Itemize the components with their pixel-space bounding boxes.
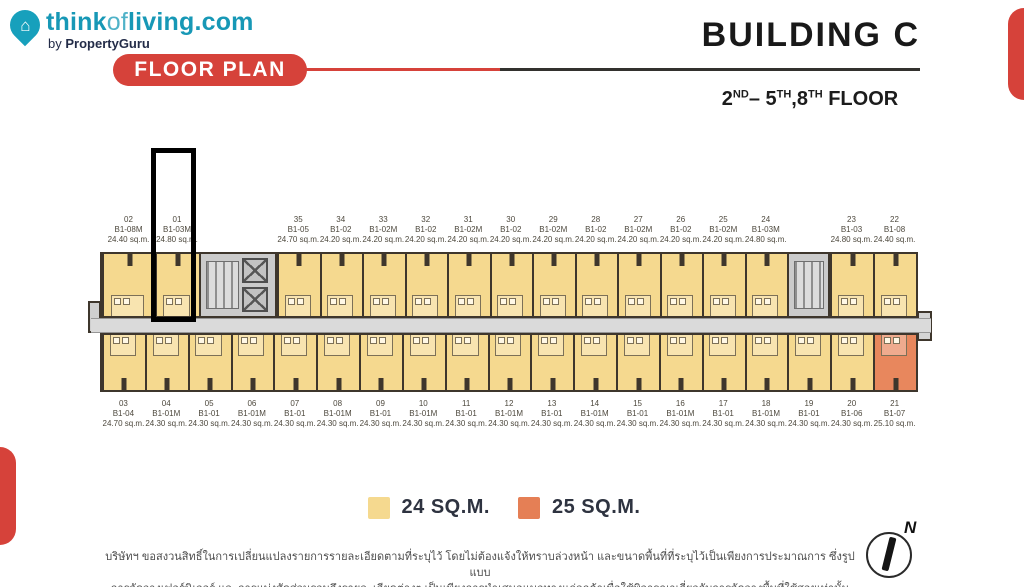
balcony-divider-icon xyxy=(679,378,684,390)
bathroom-block xyxy=(752,295,778,316)
fixture-icon xyxy=(114,298,121,305)
unit-22 xyxy=(873,254,916,316)
bathroom-block xyxy=(582,295,608,316)
bathroom-block xyxy=(667,295,693,316)
compass-north-label: N xyxy=(904,518,916,538)
bathroom-block xyxy=(838,295,864,316)
unit-05 xyxy=(188,335,231,390)
fixture-icon xyxy=(165,337,172,344)
fixture-icon xyxy=(422,337,429,344)
fixture-icon xyxy=(250,337,257,344)
balcony-divider-icon xyxy=(722,254,727,266)
fixture-icon xyxy=(594,298,601,305)
bathroom-block xyxy=(495,335,521,356)
fixture-icon xyxy=(424,298,431,305)
fixture-icon xyxy=(207,337,214,344)
fixture-icon xyxy=(755,337,762,344)
fixture-icon xyxy=(636,337,643,344)
fixture-icon xyxy=(198,337,205,344)
unit-24 xyxy=(745,254,788,316)
stairs-icon xyxy=(206,261,239,309)
balcony-divider-icon xyxy=(507,378,512,390)
fixture-icon xyxy=(841,337,848,344)
fixture-icon xyxy=(670,298,677,305)
fixture-icon xyxy=(713,298,720,305)
legend-swatch-24sqm xyxy=(368,497,390,519)
bathroom-block xyxy=(581,335,607,356)
fixture-icon xyxy=(841,298,848,305)
unit-15 xyxy=(616,335,659,390)
elevator-icon xyxy=(242,287,268,312)
balcony-divider-icon xyxy=(165,378,170,390)
unit-20 xyxy=(830,335,873,390)
fixture-icon xyxy=(627,337,634,344)
unit-07 xyxy=(273,335,316,390)
fixture-icon xyxy=(241,337,248,344)
bathroom-block xyxy=(410,335,436,356)
unit-no: 21 xyxy=(863,399,927,409)
balcony-divider-icon xyxy=(722,378,727,390)
fixture-icon xyxy=(288,298,295,305)
fixture-icon xyxy=(764,337,771,344)
unit-no: 22 xyxy=(863,215,927,225)
fixture-icon xyxy=(679,337,686,344)
fixture-icon xyxy=(722,298,729,305)
fixture-icon xyxy=(755,298,762,305)
balcony-divider-icon xyxy=(764,254,769,266)
bathroom-block xyxy=(324,335,350,356)
fixture-icon xyxy=(113,337,120,344)
balcony-divider-icon xyxy=(422,378,427,390)
unit-16 xyxy=(659,335,702,390)
balcony-divider-icon xyxy=(765,378,770,390)
unit-27 xyxy=(617,254,660,316)
fixture-icon xyxy=(884,298,891,305)
bathroom-block xyxy=(710,295,736,316)
fixture-icon xyxy=(284,337,291,344)
balcony-divider-icon xyxy=(379,378,384,390)
unit-label-21: 21B1-0725.10 sq.m. xyxy=(863,399,927,429)
unit-30 xyxy=(490,254,533,316)
fixture-icon xyxy=(807,337,814,344)
fixture-icon xyxy=(156,337,163,344)
fixture-icon xyxy=(382,298,389,305)
unit-02 xyxy=(102,254,155,316)
stairs-icon xyxy=(794,261,824,309)
legend-label-25sqm: 25 SQ.M. xyxy=(552,496,640,519)
bathroom-block xyxy=(238,335,264,356)
fixture-icon xyxy=(413,337,420,344)
unit-35 xyxy=(277,254,320,316)
bottom-unit-band xyxy=(100,333,918,392)
fixture-icon xyxy=(509,298,516,305)
fixture-icon xyxy=(327,337,334,344)
fixture-icon xyxy=(541,337,548,344)
bathroom-block xyxy=(538,335,564,356)
unit-06 xyxy=(231,335,274,390)
bathroom-block xyxy=(153,335,179,356)
fixture-icon xyxy=(585,298,592,305)
balcony-divider-icon xyxy=(552,254,557,266)
fixture-icon xyxy=(455,337,462,344)
unit-23 xyxy=(830,254,873,316)
balcony-divider-icon xyxy=(850,254,855,266)
fixture-icon xyxy=(543,298,550,305)
bathroom-block xyxy=(795,335,821,356)
unit-19 xyxy=(787,335,830,390)
unit-08 xyxy=(316,335,359,390)
bathroom-block xyxy=(452,335,478,356)
balcony-divider-icon xyxy=(336,378,341,390)
fixture-icon xyxy=(679,298,686,305)
fixture-icon xyxy=(798,337,805,344)
fixture-icon xyxy=(507,337,514,344)
fixture-icon xyxy=(123,298,130,305)
fixture-icon xyxy=(415,298,422,305)
bathroom-block xyxy=(667,335,693,356)
unit-09 xyxy=(359,335,402,390)
unit-code: B1-07 xyxy=(863,409,927,419)
fixture-icon xyxy=(593,337,600,344)
unit-14 xyxy=(573,335,616,390)
bathroom-block xyxy=(625,295,651,316)
fixture-icon xyxy=(850,337,857,344)
bathroom-block xyxy=(497,295,523,316)
bathroom-block xyxy=(838,335,864,356)
legend-swatch-25sqm xyxy=(518,497,540,519)
unit-32 xyxy=(405,254,448,316)
legend-label-24sqm: 24 SQ.M. xyxy=(402,496,490,519)
bathroom-block xyxy=(327,295,353,316)
balcony-divider-icon xyxy=(208,378,213,390)
fixture-icon xyxy=(297,298,304,305)
balcony-divider-icon xyxy=(807,378,812,390)
bathroom-block xyxy=(455,295,481,316)
unit-highlight-box xyxy=(151,148,196,322)
unit-21 xyxy=(873,335,916,390)
top-unit-band xyxy=(100,252,918,318)
balcony-divider-icon xyxy=(297,254,302,266)
disclaimer-line-1: บริษัทฯ ขอสงวนสิทธิ์ในการเปลี่ยนแปลงรายก… xyxy=(100,549,860,581)
bathroom-block xyxy=(195,335,221,356)
fixture-icon xyxy=(850,298,857,305)
unit-04 xyxy=(145,335,188,390)
unit-26 xyxy=(660,254,703,316)
fixture-icon xyxy=(712,337,719,344)
fixture-icon xyxy=(764,298,771,305)
corridor xyxy=(91,318,931,333)
fixture-icon xyxy=(293,337,300,344)
fixture-icon xyxy=(500,298,507,305)
fixture-icon xyxy=(379,337,386,344)
balcony-divider-icon xyxy=(382,254,387,266)
unit-18 xyxy=(745,335,788,390)
fixture-icon xyxy=(584,337,591,344)
balcony-divider-icon xyxy=(893,254,898,266)
balcony-divider-icon xyxy=(467,254,472,266)
unit-code: B1-03M xyxy=(734,225,798,235)
bathroom-block xyxy=(752,335,778,356)
fixture-icon xyxy=(370,337,377,344)
bathroom-block xyxy=(285,295,311,316)
unit-area: 24.80 sq.m. xyxy=(734,235,798,245)
balcony-divider-icon xyxy=(465,378,470,390)
balcony-divider-icon xyxy=(122,378,127,390)
unit-area: 25.10 sq.m. xyxy=(863,419,927,429)
unit-29 xyxy=(532,254,575,316)
bathroom-block xyxy=(540,295,566,316)
bathroom-block xyxy=(881,335,907,356)
compass-circle xyxy=(866,532,912,578)
balcony-divider-icon xyxy=(594,254,599,266)
fixture-icon xyxy=(721,337,728,344)
fixture-icon xyxy=(373,298,380,305)
bathroom-block xyxy=(367,335,393,356)
bathroom-block xyxy=(709,335,735,356)
balcony-divider-icon xyxy=(636,378,641,390)
compass-needle-icon xyxy=(881,537,896,572)
bathroom-block xyxy=(110,335,136,356)
fixture-icon xyxy=(122,337,129,344)
fixture-icon xyxy=(330,298,337,305)
balcony-divider-icon xyxy=(339,254,344,266)
fixture-icon xyxy=(670,337,677,344)
unit-17 xyxy=(702,335,745,390)
elevator-stair-core xyxy=(199,254,277,316)
unit-area: 24.40 sq.m. xyxy=(863,235,927,245)
fixture-icon xyxy=(637,298,644,305)
unit-label-24: 24B1-03M24.80 sq.m. xyxy=(734,215,798,245)
fixture-icon xyxy=(628,298,635,305)
disclaimer-line-2: การจัดวางเฟอร์นิเจอร์ และการแบ่งสัดส่วนร… xyxy=(100,581,860,587)
unit-13 xyxy=(530,335,573,390)
fixture-icon xyxy=(893,298,900,305)
unit-25 xyxy=(702,254,745,316)
unit-33 xyxy=(362,254,405,316)
disclaimer: บริษัทฯ ขอสงวนสิทธิ์ในการเปลี่ยนแปลงรายก… xyxy=(100,549,860,587)
fixture-icon xyxy=(893,337,900,344)
unit-code: B1-08 xyxy=(863,225,927,235)
balcony-divider-icon xyxy=(850,378,855,390)
bathroom-block xyxy=(412,295,438,316)
fixture-icon xyxy=(336,337,343,344)
balcony-divider-icon xyxy=(893,378,898,390)
bathroom-block xyxy=(881,295,907,316)
balcony-divider-icon xyxy=(637,254,642,266)
balcony-divider-icon xyxy=(250,378,255,390)
unit-03 xyxy=(102,335,145,390)
bathroom-block xyxy=(111,295,144,316)
legend: 24 SQ.M. 25 SQ.M. xyxy=(0,496,1024,519)
unit-28 xyxy=(575,254,618,316)
unit-label-22: 22B1-0824.40 sq.m. xyxy=(863,215,927,245)
balcony-divider-icon xyxy=(509,254,514,266)
unit-34 xyxy=(320,254,363,316)
balcony-divider-icon xyxy=(127,254,132,266)
unit-no: 24 xyxy=(734,215,798,225)
fixture-icon xyxy=(884,337,891,344)
balcony-divider-icon xyxy=(424,254,429,266)
unit-12 xyxy=(488,335,531,390)
compass: N xyxy=(860,518,932,586)
balcony-divider-icon xyxy=(679,254,684,266)
elevator-icon xyxy=(242,258,268,283)
balcony-divider-icon xyxy=(593,378,598,390)
stair-core xyxy=(787,254,830,316)
fixture-icon xyxy=(458,298,465,305)
floor-plan-page: ⌂ thinkofliving.com by PropertyGuru FLOO… xyxy=(0,0,1024,587)
bathroom-block xyxy=(281,335,307,356)
bathroom-block xyxy=(624,335,650,356)
bathroom-block xyxy=(370,295,396,316)
unit-11 xyxy=(445,335,488,390)
fixture-icon xyxy=(464,337,471,344)
fixture-icon xyxy=(498,337,505,344)
balcony-divider-icon xyxy=(550,378,555,390)
balcony-divider-icon xyxy=(293,378,298,390)
unit-31 xyxy=(447,254,490,316)
fixture-icon xyxy=(467,298,474,305)
unit-10 xyxy=(402,335,445,390)
fixture-icon xyxy=(339,298,346,305)
fixture-icon xyxy=(552,298,559,305)
fixture-icon xyxy=(550,337,557,344)
